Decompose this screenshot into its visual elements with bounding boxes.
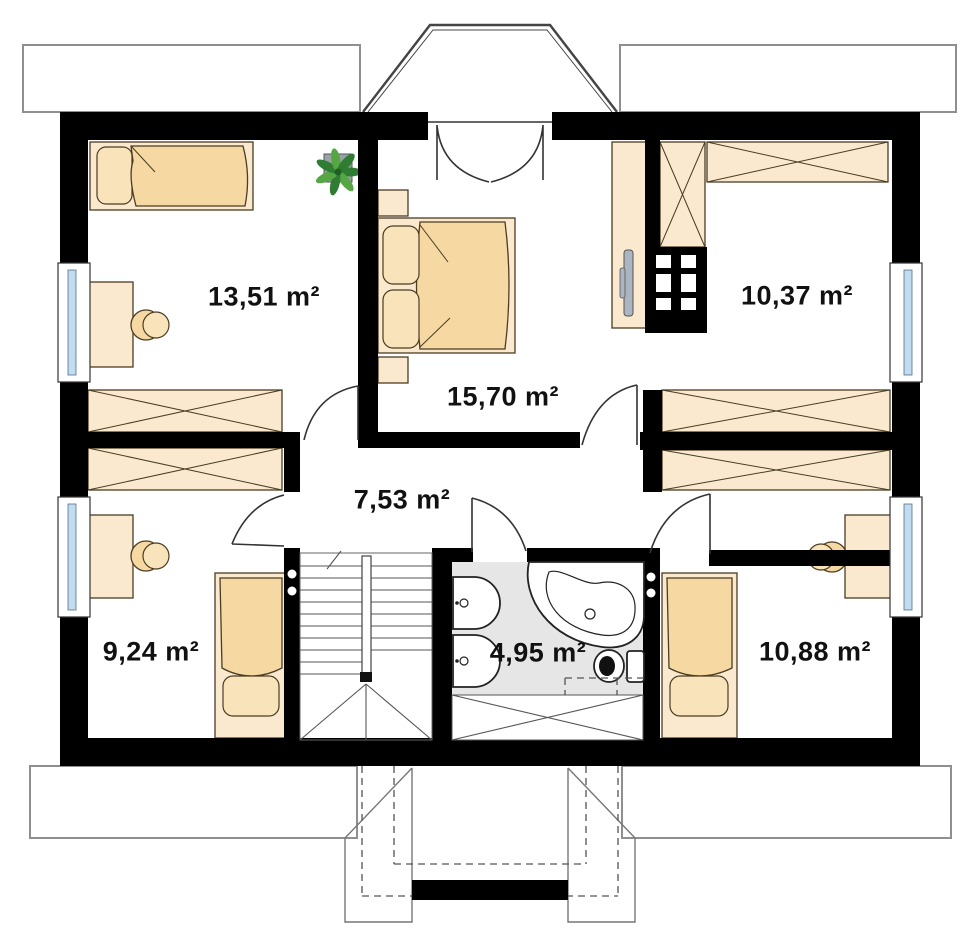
wall-master-bottom: [358, 432, 580, 448]
window-left-bottom: [58, 497, 90, 617]
room-label-bedroom-bottom-left: 9,24 m²: [103, 637, 200, 668]
wardrobe-closet-left: [660, 142, 705, 247]
porch-roof-dashed: [362, 766, 618, 896]
single-bed-3-pillow: [670, 676, 728, 716]
toilet: [594, 650, 644, 682]
nightstand-top: [378, 190, 408, 216]
bay-floor: [363, 25, 617, 112]
room-label-hallway: 7,53 m²: [354, 485, 451, 516]
under-roof-storage: [452, 695, 643, 740]
plan-canvas: [0, 0, 979, 948]
staircase: [300, 551, 432, 740]
stair-treads-right-flight: [371, 614, 432, 650]
wardrobe-right-top: [662, 390, 890, 432]
wall-top-right: [552, 112, 920, 140]
wall-right-1: [892, 112, 920, 263]
wall-bath-top-right: [527, 548, 660, 562]
wardrobe-closet-top: [707, 142, 888, 182]
room-label-master-bedroom: 15,70 m²: [447, 382, 559, 413]
single-bed-3-blanket: [667, 578, 732, 676]
eave-bottom-right: [622, 766, 951, 838]
stair-newel-post: [360, 672, 372, 682]
room-label-wardrobe-room: 10,37 m²: [741, 281, 853, 312]
wall-left-3: [60, 617, 88, 766]
stair-rail: [362, 556, 371, 676]
window-right-bottom: [890, 497, 922, 617]
nightstand-bottom: [378, 357, 408, 383]
desk-2: [88, 515, 133, 598]
double-bed-blanket: [417, 222, 510, 349]
room-label-bedroom-top-left: 13,51 m²: [208, 282, 320, 313]
single-bed-1-pillow: [97, 147, 132, 204]
bedroom-top-left-furniture: [88, 142, 362, 367]
single-bed-2-pillow: [223, 676, 279, 716]
wardrobe-right-bottom: [662, 450, 890, 490]
bedroom-bottom-left-furniture: [88, 515, 287, 738]
chair-2-seat: [143, 543, 169, 569]
wall-stub-hall-left: [284, 448, 300, 492]
single-bed-2-blanket: [220, 578, 282, 676]
wall-bath-left: [432, 548, 452, 740]
bay-window: [363, 25, 617, 122]
tv-stand: [620, 268, 625, 298]
window-left-top: [58, 263, 90, 382]
wall-bedroom3-top: [709, 550, 892, 566]
door-bathroom: [472, 498, 526, 552]
double-bed-pillow-2: [383, 290, 419, 348]
wall-right-2: [892, 382, 920, 497]
eave-bottom-left: [30, 766, 357, 838]
door-bedroom-bottom-left: [232, 495, 284, 546]
door-bedroom-bottom-right: [650, 494, 710, 554]
wall-left-divider: [88, 432, 300, 448]
wall-master-right: [645, 140, 660, 247]
door-bedroom-top-left: [304, 386, 358, 440]
room-label-bedroom-bottom-right: 10,88 m²: [759, 637, 871, 668]
desk-1: [88, 282, 133, 367]
french-doors-bay: [437, 125, 543, 182]
wall-bottom: [60, 738, 920, 766]
wall-master-left: [358, 140, 378, 448]
single-bed-1-blanket: [131, 146, 248, 206]
bedroom-bottom-right-furniture: [662, 515, 892, 738]
wall-left-2: [60, 382, 88, 497]
stair-treads-left-flight: [300, 614, 362, 674]
stair-winder-lines: [300, 684, 432, 740]
porch-below: [345, 766, 635, 922]
wall-right-divider: [640, 432, 920, 450]
chair-1-seat: [143, 312, 169, 338]
door-master-bedroom: [582, 385, 637, 445]
floor-plan: 13,51 m² 15,70 m² 10,37 m² 7,53 m² 9,24 …: [0, 0, 979, 948]
wall-right-3: [892, 617, 920, 766]
master-bedroom-furniture: [378, 142, 647, 383]
room-label-bathroom: 4,95 m²: [490, 638, 587, 669]
window-right-top: [890, 263, 922, 382]
sink-1: [453, 577, 500, 629]
porch-wall: [412, 880, 568, 900]
chimney-block: [645, 247, 707, 333]
wall-top-left: [60, 112, 428, 140]
double-bed-pillow-1: [383, 226, 419, 284]
potted-plant: [314, 148, 362, 197]
wall-left-1: [60, 112, 88, 263]
eave-top-right: [620, 45, 956, 112]
wardrobe-left-bottom: [88, 448, 282, 490]
wardrobe-left-top: [88, 390, 282, 432]
eave-top-left: [23, 45, 360, 112]
